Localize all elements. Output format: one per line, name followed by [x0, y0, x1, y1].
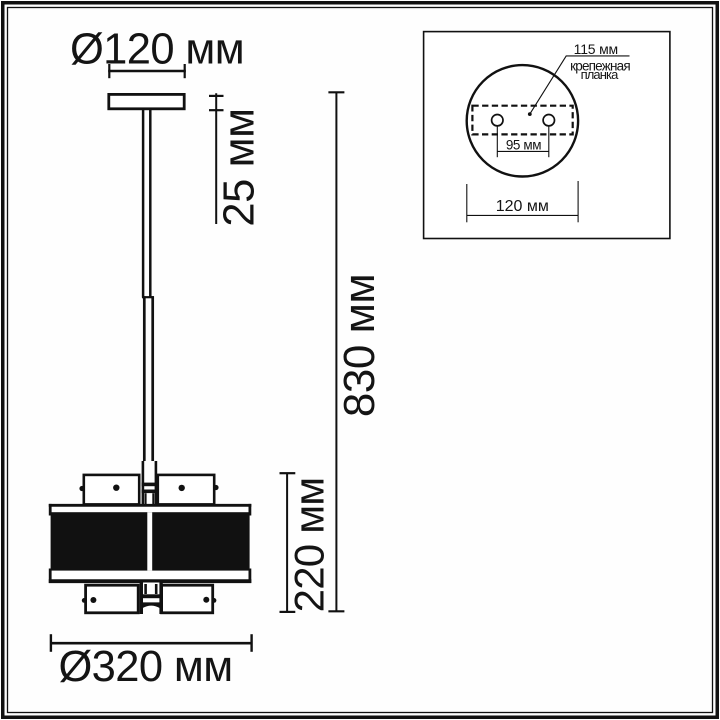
svg-text:планка: планка [581, 67, 620, 82]
svg-text:120 мм: 120 мм [496, 198, 549, 215]
svg-text:115 мм: 115 мм [574, 41, 618, 57]
svg-text:Ø320 мм: Ø320 мм [58, 643, 232, 691]
svg-text:220 мм: 220 мм [286, 478, 333, 613]
svg-text:830 мм: 830 мм [335, 274, 384, 417]
svg-text:95 мм: 95 мм [506, 137, 541, 152]
svg-text:Ø120 мм: Ø120 мм [70, 26, 244, 74]
svg-text:25 мм: 25 мм [216, 108, 264, 226]
